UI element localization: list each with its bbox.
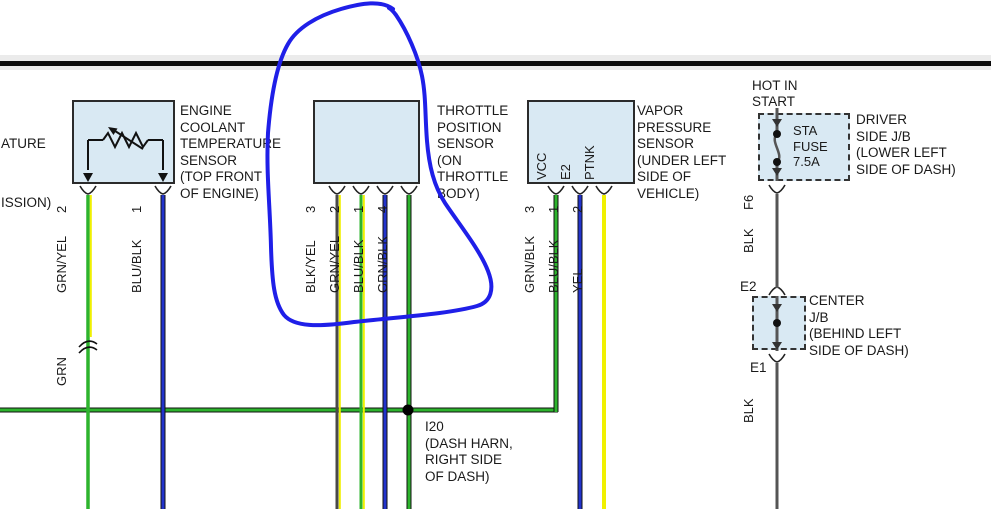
wiring-diagram-canvas: ATURE ISSION) ENGINE COOLANT TEMPERATURE… [0, 0, 991, 509]
annotation-layer [0, 0, 991, 509]
annotation-circle [267, 3, 491, 325]
